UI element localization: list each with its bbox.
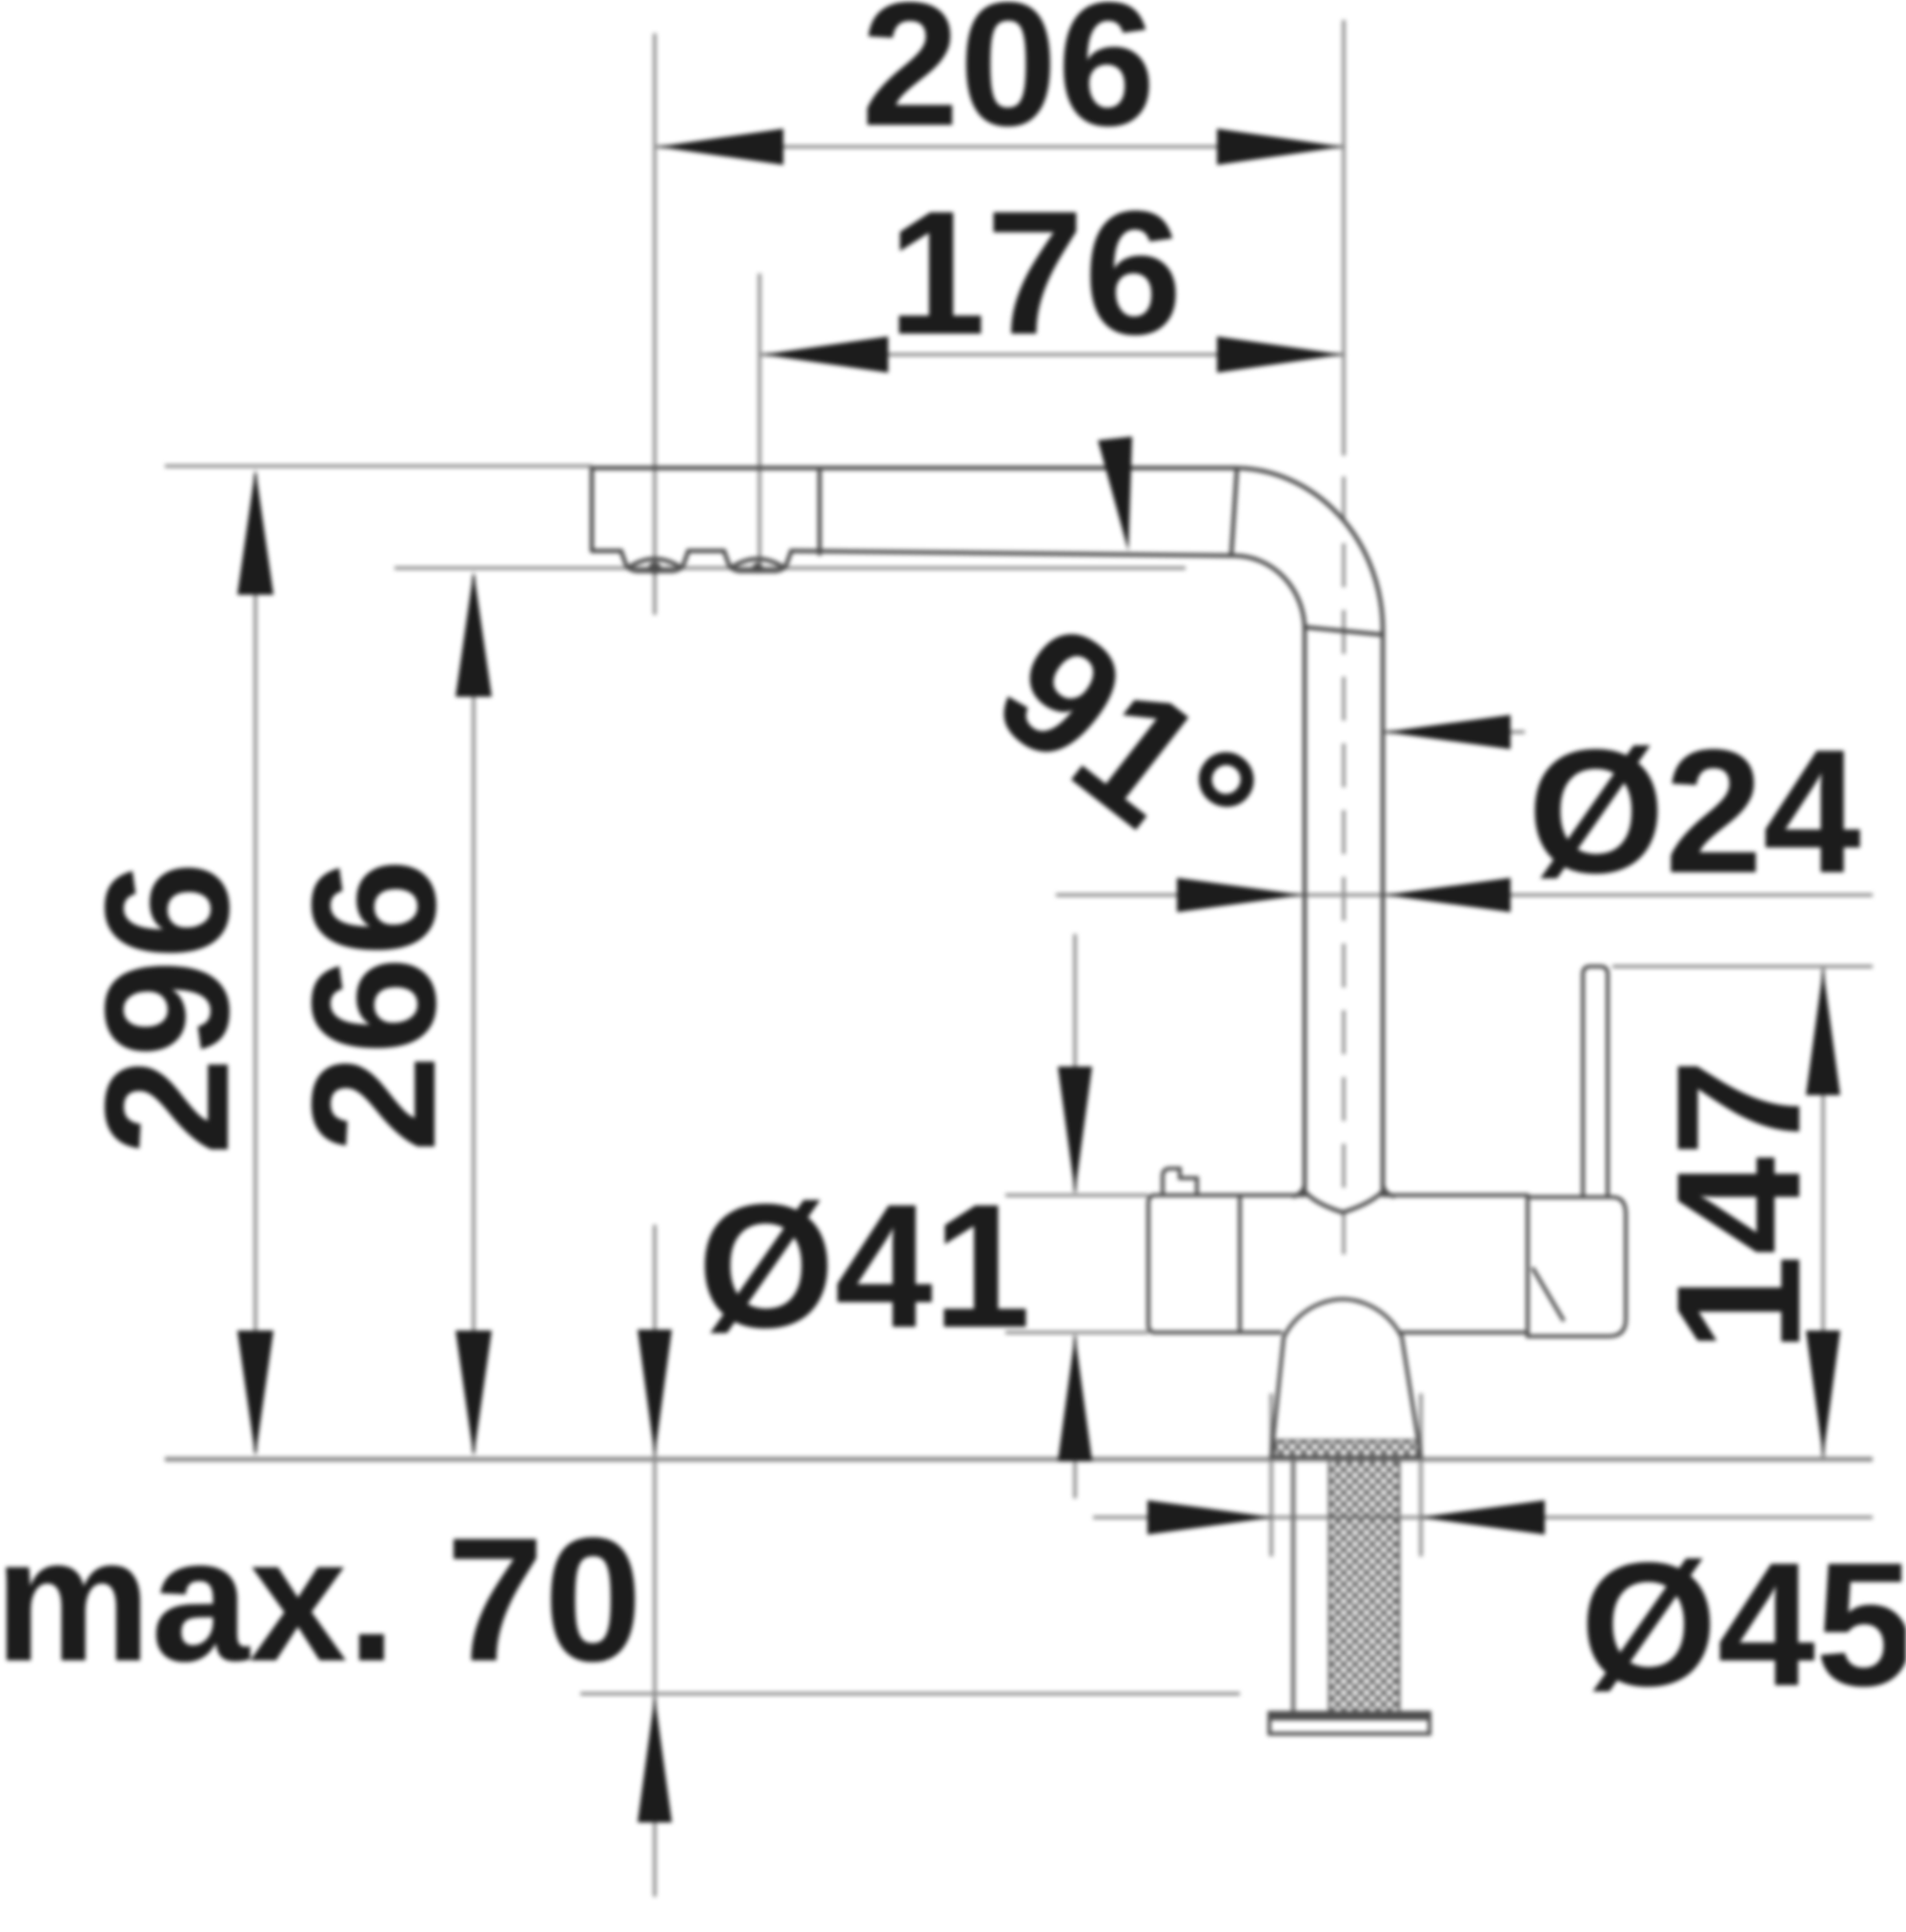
- svg-text:Ø24: Ø24: [1528, 714, 1861, 910]
- svg-text:147: 147: [1641, 1059, 1837, 1353]
- svg-text:70: 70: [446, 1502, 642, 1698]
- svg-text:Ø45: Ø45: [1580, 1527, 1906, 1723]
- svg-text:296: 296: [70, 862, 266, 1156]
- svg-text:176: 176: [888, 175, 1183, 372]
- svg-text:266: 266: [276, 859, 473, 1153]
- svg-text:Ø41: Ø41: [698, 1169, 1031, 1365]
- svg-text:91°: 91°: [962, 588, 1292, 907]
- svg-text:max.: max.: [0, 1502, 396, 1698]
- svg-text:206: 206: [862, 0, 1156, 163]
